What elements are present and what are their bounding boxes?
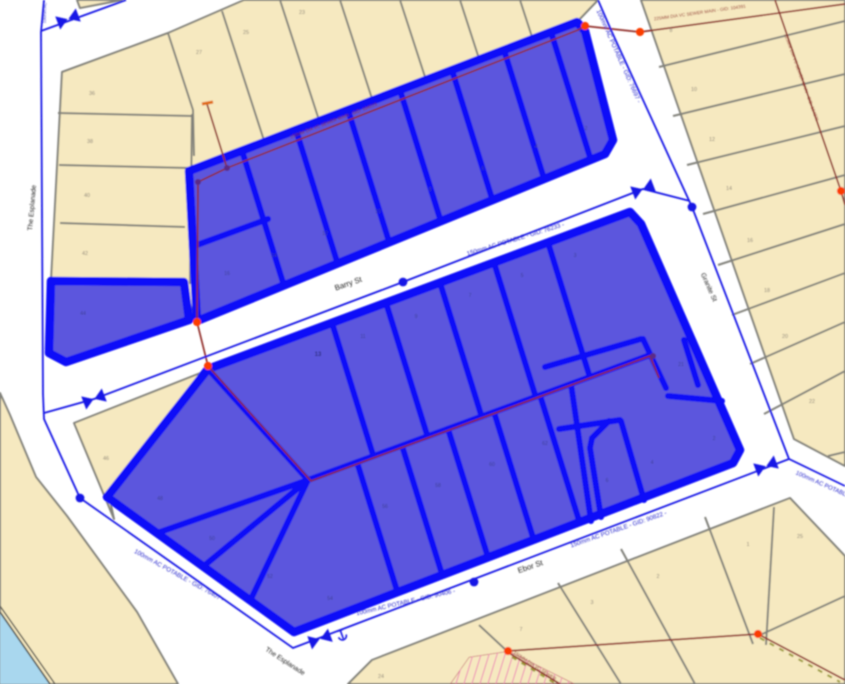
svg-text:11: 11 (360, 334, 365, 340)
svg-text:18: 18 (764, 288, 770, 294)
svg-text:6: 6 (606, 478, 609, 484)
svg-text:10: 10 (691, 87, 697, 93)
svg-text:1: 1 (747, 542, 750, 548)
svg-text:25: 25 (797, 534, 803, 540)
svg-text:54: 54 (327, 596, 333, 602)
svg-text:44: 44 (80, 311, 86, 317)
svg-text:7: 7 (469, 293, 472, 299)
svg-text:22: 22 (809, 399, 815, 405)
svg-text:4: 4 (535, 144, 538, 150)
svg-text:25: 25 (243, 30, 249, 36)
svg-text:36: 36 (89, 91, 95, 97)
svg-text:27: 27 (196, 50, 202, 56)
svg-text:8: 8 (670, 28, 673, 34)
svg-text:58: 58 (435, 483, 441, 489)
svg-text:42: 42 (82, 251, 88, 257)
svg-text:2: 2 (585, 126, 588, 132)
svg-text:12: 12 (322, 231, 328, 237)
svg-text:13: 13 (315, 352, 322, 358)
svg-text:24: 24 (378, 674, 384, 680)
svg-text:21: 21 (678, 362, 684, 368)
svg-text:8: 8 (429, 187, 432, 193)
svg-text:14: 14 (271, 253, 277, 259)
svg-text:46: 46 (103, 456, 109, 462)
svg-text:50: 50 (209, 536, 215, 542)
svg-text:12: 12 (709, 137, 715, 143)
svg-text:2: 2 (657, 574, 660, 580)
svg-text:9: 9 (415, 314, 418, 320)
svg-text:16: 16 (224, 271, 230, 277)
svg-text:4: 4 (651, 460, 654, 466)
svg-text:62: 62 (542, 441, 548, 447)
svg-text:3: 3 (574, 253, 577, 259)
svg-text:38: 38 (87, 139, 93, 145)
svg-text:52: 52 (267, 574, 273, 580)
svg-text:48: 48 (157, 496, 163, 502)
svg-text:14: 14 (726, 186, 732, 192)
svg-text:56: 56 (382, 504, 388, 510)
svg-text:100mm AC: 100mm AC (42, 3, 48, 24)
svg-text:5: 5 (521, 273, 524, 279)
svg-text:20: 20 (782, 334, 788, 340)
svg-text:3: 3 (591, 600, 594, 606)
svg-text:2: 2 (713, 436, 716, 442)
svg-text:7: 7 (520, 627, 523, 633)
svg-text:16: 16 (747, 238, 753, 244)
svg-text:10: 10 (375, 209, 381, 215)
svg-text:6: 6 (482, 166, 485, 172)
svg-text:60: 60 (489, 462, 495, 468)
svg-text:23: 23 (299, 10, 305, 16)
svg-text:40: 40 (84, 193, 90, 199)
